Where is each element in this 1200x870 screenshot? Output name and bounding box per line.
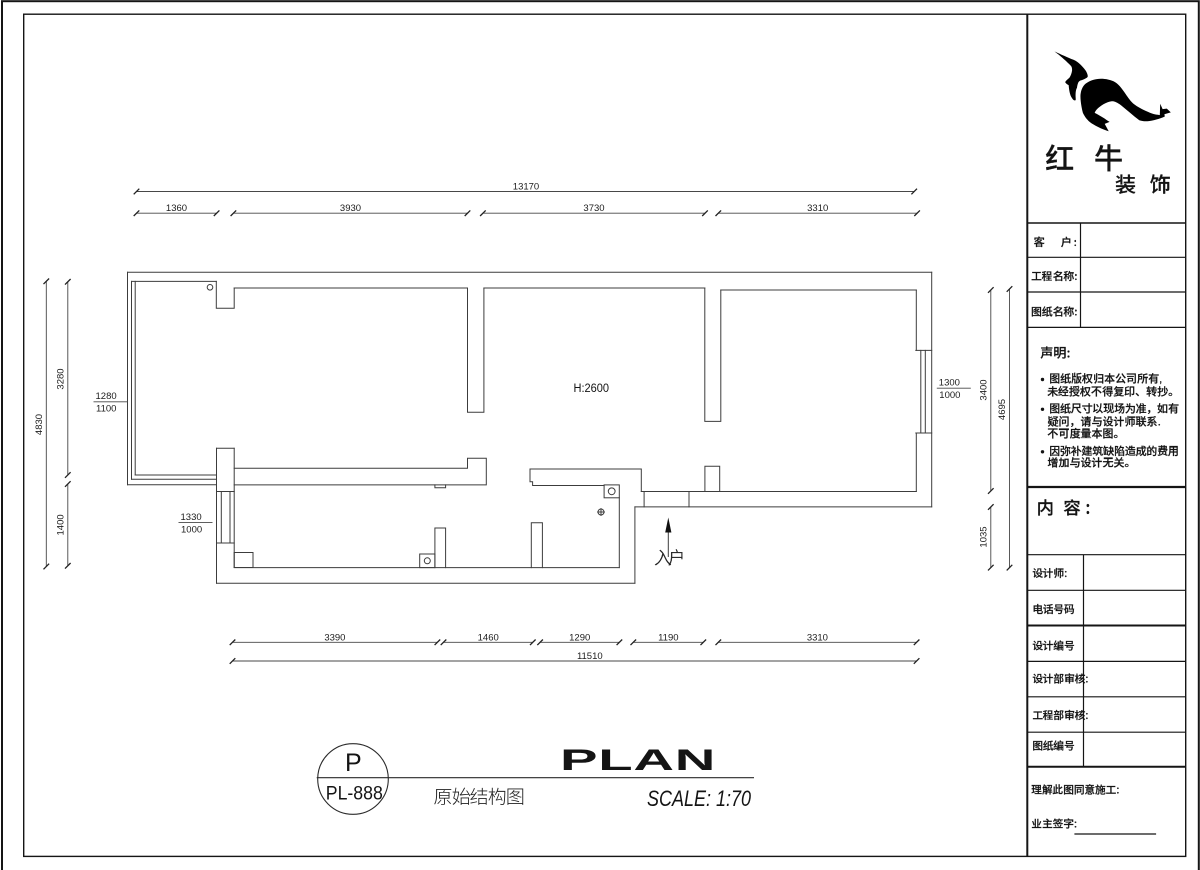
svg-text:图纸名称:: 图纸名称: xyxy=(1031,304,1077,320)
svg-text:3730: 3730 xyxy=(583,203,604,214)
svg-text:1280: 1280 xyxy=(96,391,117,402)
svg-text:设计编号: 设计编号 xyxy=(1032,639,1074,654)
svg-text:增加与设计无关。: 增加与设计无关。 xyxy=(1048,455,1136,471)
svg-text:3280: 3280 xyxy=(55,368,66,389)
svg-text:工程部审核:: 工程部审核: xyxy=(1032,708,1088,723)
svg-text:图纸编号: 图纸编号 xyxy=(1032,738,1074,753)
svg-text:装饰: 装饰 xyxy=(1115,169,1184,199)
svg-text:PL-888: PL-888 xyxy=(326,784,383,805)
svg-text:1190: 1190 xyxy=(658,632,678,643)
svg-text:设计师:: 设计师: xyxy=(1032,566,1067,581)
svg-text:3310: 3310 xyxy=(807,632,828,643)
svg-text:入户: 入户 xyxy=(654,545,685,570)
svg-text:1460: 1460 xyxy=(478,632,499,643)
svg-text:业主签字:: 业主签字: xyxy=(1031,817,1077,832)
svg-text:3400: 3400 xyxy=(978,379,989,400)
svg-text:1035: 1035 xyxy=(978,526,989,547)
svg-text:声明:: 声明: xyxy=(1040,343,1070,362)
svg-text:1000: 1000 xyxy=(181,524,202,535)
svg-text:设计部审核:: 设计部审核: xyxy=(1032,671,1088,686)
svg-text:1000: 1000 xyxy=(939,390,960,401)
svg-text:1360: 1360 xyxy=(166,203,187,214)
svg-text:1330: 1330 xyxy=(181,512,202,523)
svg-text:SCALE: 1:70: SCALE: 1:70 xyxy=(647,787,752,811)
svg-text:4830: 4830 xyxy=(34,414,45,435)
svg-text:13170: 13170 xyxy=(513,181,539,192)
svg-text:未经授权不得复印、转抄。: 未经授权不得复印、转抄。 xyxy=(1047,383,1179,399)
svg-text:1290: 1290 xyxy=(569,632,590,643)
svg-text:3930: 3930 xyxy=(340,203,361,214)
svg-text:PLAN: PLAN xyxy=(560,743,716,777)
svg-text:工程名称:: 工程名称: xyxy=(1031,268,1077,284)
svg-text:H:2600: H:2600 xyxy=(574,383,610,395)
svg-text:1400: 1400 xyxy=(55,514,66,535)
svg-text:1300: 1300 xyxy=(939,377,960,388)
svg-text:不可度量本图。: 不可度量本图。 xyxy=(1048,425,1125,441)
svg-text:1100: 1100 xyxy=(96,404,116,415)
svg-text:3310: 3310 xyxy=(807,203,828,214)
svg-text:P: P xyxy=(345,749,362,777)
svg-text:11510: 11510 xyxy=(577,651,603,662)
svg-text:原始结构图: 原始结构图 xyxy=(434,783,525,810)
svg-text:电话号码: 电话号码 xyxy=(1032,602,1074,617)
svg-text:理解此图同意施工:: 理解此图同意施工: xyxy=(1031,783,1119,798)
svg-text:4695: 4695 xyxy=(997,399,1008,420)
svg-text:3390: 3390 xyxy=(324,632,345,643)
